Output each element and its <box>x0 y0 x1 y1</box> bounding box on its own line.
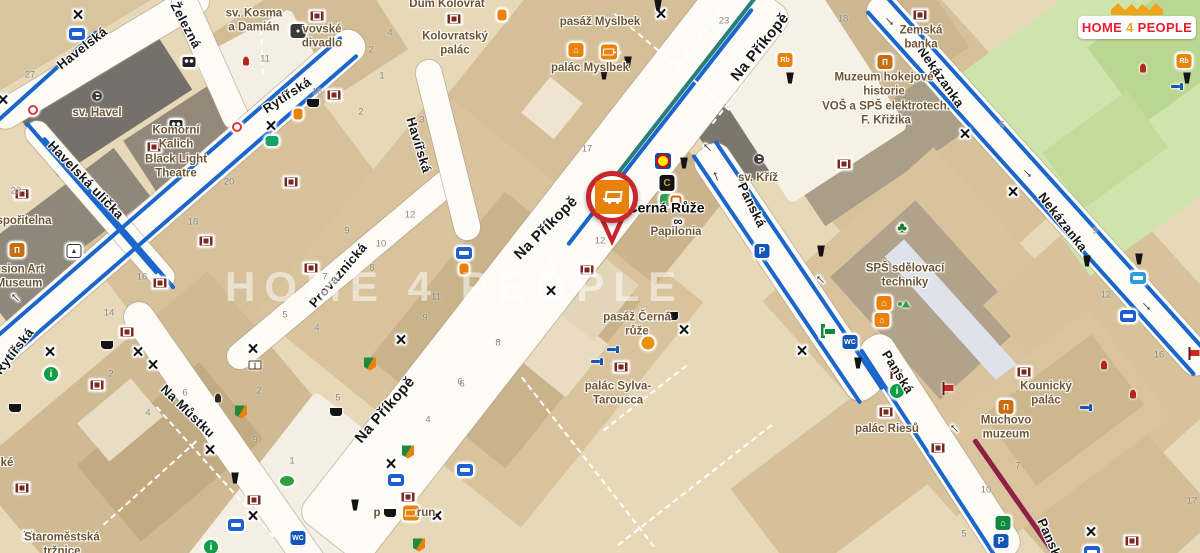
palace-icon[interactable] <box>932 444 945 453</box>
house-number: 2 <box>358 107 363 118</box>
poi-label-fragment-run: run <box>417 506 436 520</box>
house-number: 5 <box>335 393 340 404</box>
house-number: 9 <box>1092 226 1097 237</box>
poi-label-palac-riesu: palác Riesů <box>855 422 919 436</box>
poi-label-pasaz-myslbek: pasáž Myslbek <box>560 15 641 29</box>
poi-label-sv-kosma: sv. Kosmaa Damián <box>226 7 283 36</box>
library-icon[interactable] <box>249 361 262 370</box>
flag-icon[interactable] <box>942 381 955 395</box>
restaurant-icon[interactable]: × <box>147 355 158 377</box>
logo-text-4: 4 <box>1126 20 1134 35</box>
cosmetics-icon[interactable] <box>498 10 507 21</box>
palace-icon[interactable] <box>121 328 134 337</box>
hotel-icon[interactable] <box>228 519 244 531</box>
restaurant-icon[interactable]: × <box>132 342 143 364</box>
bollard-icon[interactable] <box>28 105 38 115</box>
bollard-icon[interactable] <box>232 122 242 132</box>
bank-icon[interactable]: Rb <box>778 53 793 67</box>
house-number: 12 <box>405 210 416 221</box>
house-number: 1 <box>289 456 294 467</box>
poi-label-pasaz-cerna-ruze: pasáž Černárůže <box>603 311 671 340</box>
house-number: 16 <box>312 87 323 98</box>
house-number: 10 <box>981 485 992 496</box>
home4people-logo[interactable]: HOME 4 PEOPLE <box>1078 16 1196 39</box>
restaurant-icon[interactable]: × <box>678 320 689 342</box>
statue-icon[interactable] <box>1130 390 1136 399</box>
poi-label-fragment-p: p <box>373 506 380 520</box>
cafe-icon[interactable] <box>307 99 319 107</box>
restaurant-icon[interactable]: × <box>796 341 807 363</box>
poi-label-sv-havel: sv. Havel <box>72 106 121 120</box>
activity-icon[interactable] <box>898 298 910 310</box>
car-wash-icon[interactable] <box>1130 272 1146 284</box>
museum-icon[interactable]: Π <box>10 243 25 257</box>
restaurant-icon[interactable]: × <box>247 506 258 528</box>
house-number: 9 <box>344 226 349 237</box>
church-icon[interactable] <box>92 91 102 101</box>
poi-label-black-light-theatre: KomorníKalichBlack LightTheatre <box>145 123 207 181</box>
house-number: 17 <box>582 144 593 155</box>
house-number: 18 <box>838 14 849 25</box>
hotel-icon[interactable] <box>456 247 472 259</box>
house-number: 4 <box>387 28 392 39</box>
cafe-icon[interactable] <box>330 408 342 416</box>
palace-icon[interactable] <box>1126 537 1139 546</box>
map-canvas[interactable]: HOME 4 PEOPLE HOME 4 PEOPLE HavelskáŽele… <box>0 0 1200 553</box>
fountain-icon[interactable] <box>1171 81 1183 91</box>
house-number: 20 <box>224 177 235 188</box>
restaurant-icon[interactable]: × <box>1085 522 1096 544</box>
house-number: 5 <box>282 310 287 321</box>
palace-icon[interactable] <box>285 178 298 187</box>
poi-label-kounicky-palac: Kounickýpalác <box>1020 380 1072 409</box>
hotel-icon[interactable] <box>388 474 404 486</box>
palace-icon[interactable] <box>615 363 628 372</box>
fountain-icon[interactable] <box>1080 402 1092 412</box>
spa-icon[interactable] <box>266 136 279 146</box>
info-icon[interactable]: i <box>204 540 218 553</box>
poi-label-zemska-banka: Zemskábanka <box>900 24 943 53</box>
cafe-icon[interactable] <box>9 404 21 412</box>
museum-icon[interactable]: Π <box>999 400 1014 414</box>
flag-icon[interactable] <box>1188 346 1200 360</box>
gallery-icon[interactable]: ▲ <box>67 244 82 258</box>
restaurant-icon[interactable]: × <box>1007 182 1018 204</box>
house-number: 12 <box>1101 290 1112 301</box>
palace-icon[interactable] <box>248 496 261 505</box>
palace-icon[interactable] <box>311 12 324 21</box>
poi-label-papilonia: Papilonia <box>650 225 701 239</box>
cosmetics-icon[interactable] <box>294 109 303 120</box>
map-watermark: HOME 4 PEOPLE <box>225 263 685 311</box>
hotel-icon[interactable] <box>1084 546 1100 553</box>
poi-label-cerna-ruze: Černá Růže <box>627 199 704 217</box>
theatre-masks-icon[interactable] <box>183 57 196 67</box>
house-number: 22 <box>11 186 22 197</box>
green-badge-icon[interactable] <box>280 476 294 486</box>
poi-label-sv-kriz: sv. Kříž <box>738 171 778 185</box>
restaurant-icon[interactable]: × <box>72 5 83 27</box>
house-number: 4 <box>425 415 430 426</box>
logo-text-home: HOME <box>1082 20 1122 35</box>
house-number: 7 <box>1015 461 1020 472</box>
statue-icon[interactable] <box>1101 361 1107 370</box>
palace-icon[interactable] <box>402 493 415 502</box>
poi-label-vos-sps-elektrotech: VOŠ a SPŠ elektrotech.F. Křižíka <box>822 100 950 129</box>
marker-circle[interactable] <box>586 171 638 223</box>
restaurant-icon[interactable]: × <box>204 440 215 462</box>
palace-icon[interactable] <box>1018 368 1031 377</box>
cerna-ruze-logo-icon[interactable]: C <box>660 175 675 191</box>
shop-icon[interactable]: ⌂ <box>569 43 584 57</box>
palace-icon[interactable] <box>880 408 893 417</box>
house-number: 4 <box>145 408 150 419</box>
poi-label-kolovratsky-palac: Kolovratskýpalác <box>422 30 488 59</box>
house-number: 5 <box>999 120 1004 131</box>
poi-label-sporitelna: spořitelna <box>0 214 51 228</box>
wc-icon[interactable]: WC <box>291 531 306 545</box>
house-number: 16 <box>1154 350 1165 361</box>
poi-label-muchovo-muzeum: Muchovomuzeum <box>981 414 1031 443</box>
parking-icon[interactable]: P <box>994 534 1009 548</box>
poi-label-dum-kolovrat: Dům Kolovrat <box>409 0 484 11</box>
monument-icon[interactable] <box>215 394 221 403</box>
cafe-icon[interactable] <box>384 509 396 517</box>
poi-label-sps-sdelovaci-techniky: SPŠ sdělovacítechniky <box>866 262 945 291</box>
palace-icon[interactable] <box>200 237 213 246</box>
house-number: 2 <box>368 45 373 56</box>
house-number: 9 <box>422 313 427 324</box>
poi-label-fragment-ke: ké <box>1 456 14 470</box>
house-number: 23 <box>719 16 730 27</box>
palace-icon[interactable] <box>154 279 167 288</box>
heraldic-shield-icon[interactable] <box>413 539 425 552</box>
hotel-icon[interactable] <box>457 464 473 476</box>
house-number: 2 <box>108 369 113 380</box>
restaurant-icon[interactable]: × <box>395 330 406 352</box>
cafe-icon[interactable] <box>101 341 113 349</box>
poi-label-fusion-art-museum: usion ArtMuseum <box>0 263 44 292</box>
house-number: 10 <box>376 239 387 250</box>
restaurant-icon[interactable]: × <box>265 116 276 138</box>
palace-icon[interactable] <box>838 160 851 169</box>
palace-icon[interactable] <box>914 11 927 20</box>
logo-text-people: PEOPLE <box>1138 20 1193 35</box>
poi-label-palac-sylva-taroucca: palác Sylva-Taroucca <box>585 380 651 409</box>
restaurant-icon[interactable]: × <box>385 454 396 476</box>
restaurant-icon[interactable]: × <box>247 339 258 361</box>
church-icon[interactable] <box>754 154 764 164</box>
house-number: 16 <box>137 272 148 283</box>
parking-icon[interactable]: P <box>755 244 770 258</box>
shopping-cart-icon[interactable] <box>601 45 617 60</box>
house-number: 17 <box>1187 496 1198 507</box>
poi-label-staromestska-trznice: Staroměstskátržnice <box>24 531 99 553</box>
house-number: 2 <box>256 386 261 397</box>
palace-icon[interactable] <box>91 381 104 390</box>
poi-label-muzeum-hokejove-historie: Muzeum hokejovéhistorie <box>834 71 933 100</box>
bank-icon[interactable]: Rb <box>1177 54 1192 68</box>
statue-icon[interactable] <box>243 57 249 66</box>
house-number: 18 <box>188 217 199 228</box>
marker-text-line <box>603 198 621 200</box>
grocery-icon[interactable]: ⌂ <box>996 516 1011 530</box>
house-number: 11 <box>260 54 270 65</box>
poi-label-palac-myslbek: palác Myslbek <box>551 61 629 75</box>
fountain-icon[interactable] <box>591 356 603 366</box>
wc-icon[interactable]: WC <box>843 335 858 349</box>
hotel-icon[interactable] <box>1120 310 1136 322</box>
museum-icon[interactable]: Π <box>878 55 893 69</box>
restaurant-icon[interactable]: × <box>44 342 55 364</box>
statue-icon[interactable] <box>1140 64 1146 73</box>
pharmacy-icon[interactable] <box>821 324 835 338</box>
house-number: 6 <box>459 379 464 390</box>
marker-cart-badge <box>595 180 629 214</box>
shop-icon[interactable]: ⌂ <box>877 296 892 310</box>
palace-icon[interactable] <box>16 484 29 493</box>
house-number: 1 <box>379 71 384 82</box>
house-number: 8 <box>495 338 500 349</box>
restaurant-icon[interactable]: × <box>0 90 9 112</box>
restaurant-icon[interactable]: × <box>959 124 970 146</box>
lidl-logo-icon[interactable] <box>655 153 671 169</box>
palace-icon[interactable] <box>328 91 341 100</box>
fountain-icon[interactable] <box>607 344 619 354</box>
poi-label-stavovske-divadlo: vovskédivadlo <box>302 23 342 52</box>
house-number: 27 <box>25 70 36 81</box>
shop-icon[interactable]: ⌂ <box>875 313 890 327</box>
tree-icon[interactable]: ♣ <box>897 220 907 237</box>
info-icon[interactable]: i <box>44 367 58 381</box>
house-number: 4 <box>314 323 319 334</box>
house-number: 9 <box>252 435 257 446</box>
house-number: 5 <box>961 529 966 540</box>
palace-icon[interactable] <box>448 15 461 24</box>
house-number: 14 <box>104 308 115 319</box>
